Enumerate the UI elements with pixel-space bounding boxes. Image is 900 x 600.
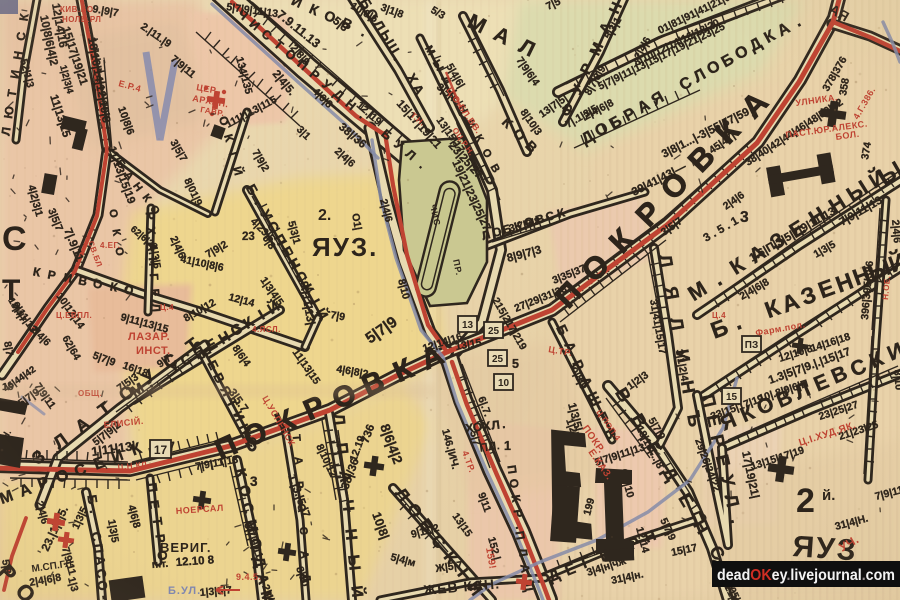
svg-text:deadOKey.livejournal.com: deadOKey.livejournal.com: [717, 567, 895, 584]
